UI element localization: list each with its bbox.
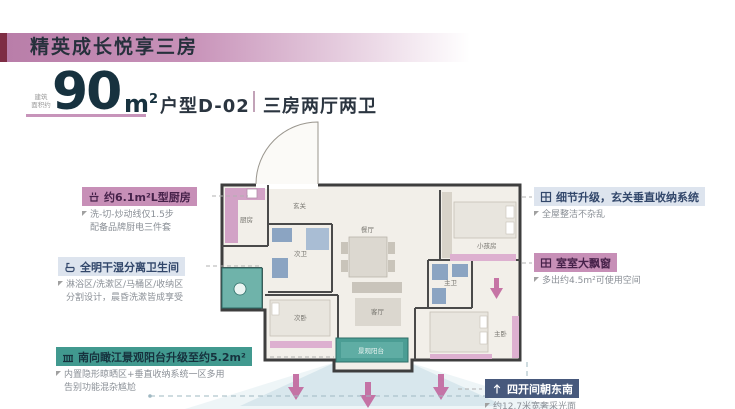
room-label-bath2: 次卫 [294,249,308,258]
callout-bay-window-header: 室室大飘窗 [534,253,617,272]
kitchen-sink [247,189,257,198]
room-label-master: 主卧 [494,329,508,338]
bed2-pillow [272,303,279,315]
master-pillow [480,316,487,328]
callout-orientation-body: 约12.7米宽奢采光面 [493,401,576,409]
room-label-dining: 餐厅 [361,225,375,234]
note-marker-icon [485,403,490,408]
storage-icon [540,191,552,203]
living-sofa [352,282,402,293]
note-marker-icon [534,277,539,282]
callout-entry-storage-line1: 全屋整洁不杂乱 [542,209,605,222]
kids-pillow [506,206,514,218]
dining-table [349,237,387,277]
balcony-icon [62,351,74,363]
callout-bathroom-body: 淋浴区/洗漱区/马桶区/收纳区 分割设计，晨昏洗漱皆成享受 [66,279,183,305]
callout-bay-window-title: 室室大飘窗 [556,255,611,271]
room-label-view-balcony: 景观阳台 [358,346,384,355]
master-pillow [480,332,487,344]
room-label-hall: 玄关 [293,201,307,210]
bath2-shower [306,228,329,250]
bath2-sink [272,228,292,242]
callout-bathroom-line1: 淋浴区/洗漱区/马桶区/收纳区 [66,279,183,292]
orientation-icon [491,383,503,395]
note-marker-icon [82,211,87,216]
callout-bay-window-body: 多出约4.5m²可使用空间 [542,275,641,288]
callout-balcony-line2: 告别功能混杂尴尬 [64,382,225,395]
kids-pillow [506,222,514,234]
callout-kitchen-header: 约6.1m²L型厨房 [82,187,197,206]
washer [234,283,246,295]
kitchen-counter-left [225,200,238,243]
callout-entry-storage-title: 细节升级，玄关垂直收纳系统 [556,189,699,205]
masterbath-toilet [432,288,446,304]
flyer-page: 精英成长悦享三房 建筑 面积约 90 m2 户型D-02 三房两厅两卫 [0,0,735,409]
note-marker-icon [534,211,539,216]
entry-door-arc [256,122,318,184]
callout-bay-window-line1: 多出约4.5m²可使用空间 [542,275,641,288]
dining-chair [341,242,348,254]
bay-window-icon [540,257,552,269]
note-marker-icon [58,281,63,286]
callout-kitchen-body: 洗-切-炒动线仅1.5步 配备品牌厨电三件套 [90,209,174,235]
callout-balcony-header: 南向瞰江景观阳台升级至约5.2m² [56,347,252,366]
masterbath-sink [432,264,448,280]
callout-balcony-title: 南向瞰江景观阳台升级至约5.2m² [78,349,246,365]
callout-orientation-line1: 约12.7米宽奢采光面 [493,401,576,409]
callout-bathroom-title: 全明干湿分离卫生间 [80,259,179,275]
room-label-masterbath: 主卫 [444,278,458,287]
masterbath-shower [452,264,468,277]
dining-chair [341,260,348,272]
bath2-toilet [272,258,288,278]
callout-entry-storage-header: 细节升级，玄关垂直收纳系统 [534,187,705,206]
callout-kitchen-line2: 配备品牌厨电三件套 [90,222,174,235]
room-label-living: 客厅 [371,307,385,316]
kitchen-icon [88,191,100,203]
callout-orientation-header: 四开间朝东南 [485,379,579,398]
callout-orientation-title: 四开间朝东南 [507,381,573,397]
callout-kitchen-line1: 洗-切-炒动线仅1.5步 [90,209,174,222]
kids-wardrobe [442,192,452,258]
callout-kitchen-title: 约6.1m²L型厨房 [104,189,191,205]
callout-bathroom-line2: 分割设计，晨昏洗漱皆成享受 [66,292,183,305]
kitchen-counter-top [225,188,265,200]
room-label-kids: 小孩房 [477,241,497,250]
room-label-bed2: 次卧 [294,313,308,322]
room-label-kitchen: 厨房 [240,215,253,224]
callout-entry-storage-body: 全屋整洁不杂乱 [542,209,605,222]
master-bed [430,312,488,352]
callout-balcony-line1: 内置隐形晾晒区+垂直收纳系统一区多用 [64,369,225,382]
callout-bathroom-header: 全明干湿分离卫生间 [58,257,185,276]
dining-chair [388,260,395,272]
dining-chair [388,242,395,254]
note-marker-icon [56,371,61,376]
callout-balcony-body: 内置隐形晾晒区+垂直收纳系统一区多用 告别功能混杂尴尬 [64,369,225,395]
bathroom-icon [64,261,76,273]
